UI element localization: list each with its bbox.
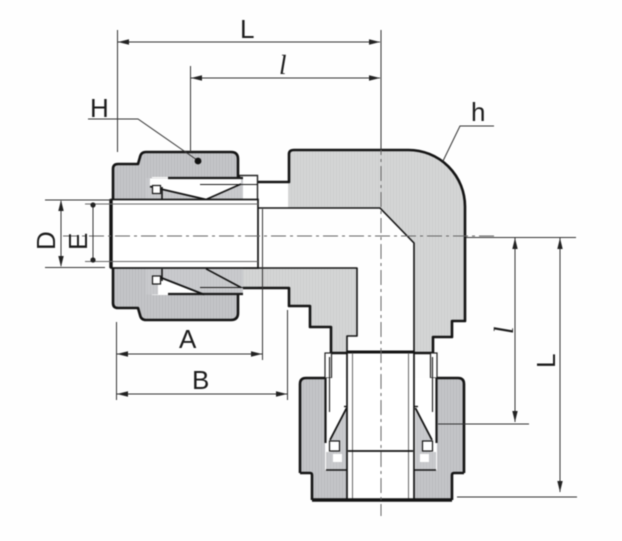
svg-text:B: B: [192, 365, 209, 395]
svg-text:A: A: [179, 324, 197, 354]
svg-text:L: L: [240, 14, 254, 44]
svg-text:D: D: [31, 231, 61, 250]
svg-text:E: E: [63, 233, 93, 250]
svg-text:l: l: [489, 326, 519, 334]
svg-text:h: h: [471, 97, 485, 127]
svg-text:l: l: [279, 50, 287, 80]
svg-text:L: L: [531, 354, 561, 368]
